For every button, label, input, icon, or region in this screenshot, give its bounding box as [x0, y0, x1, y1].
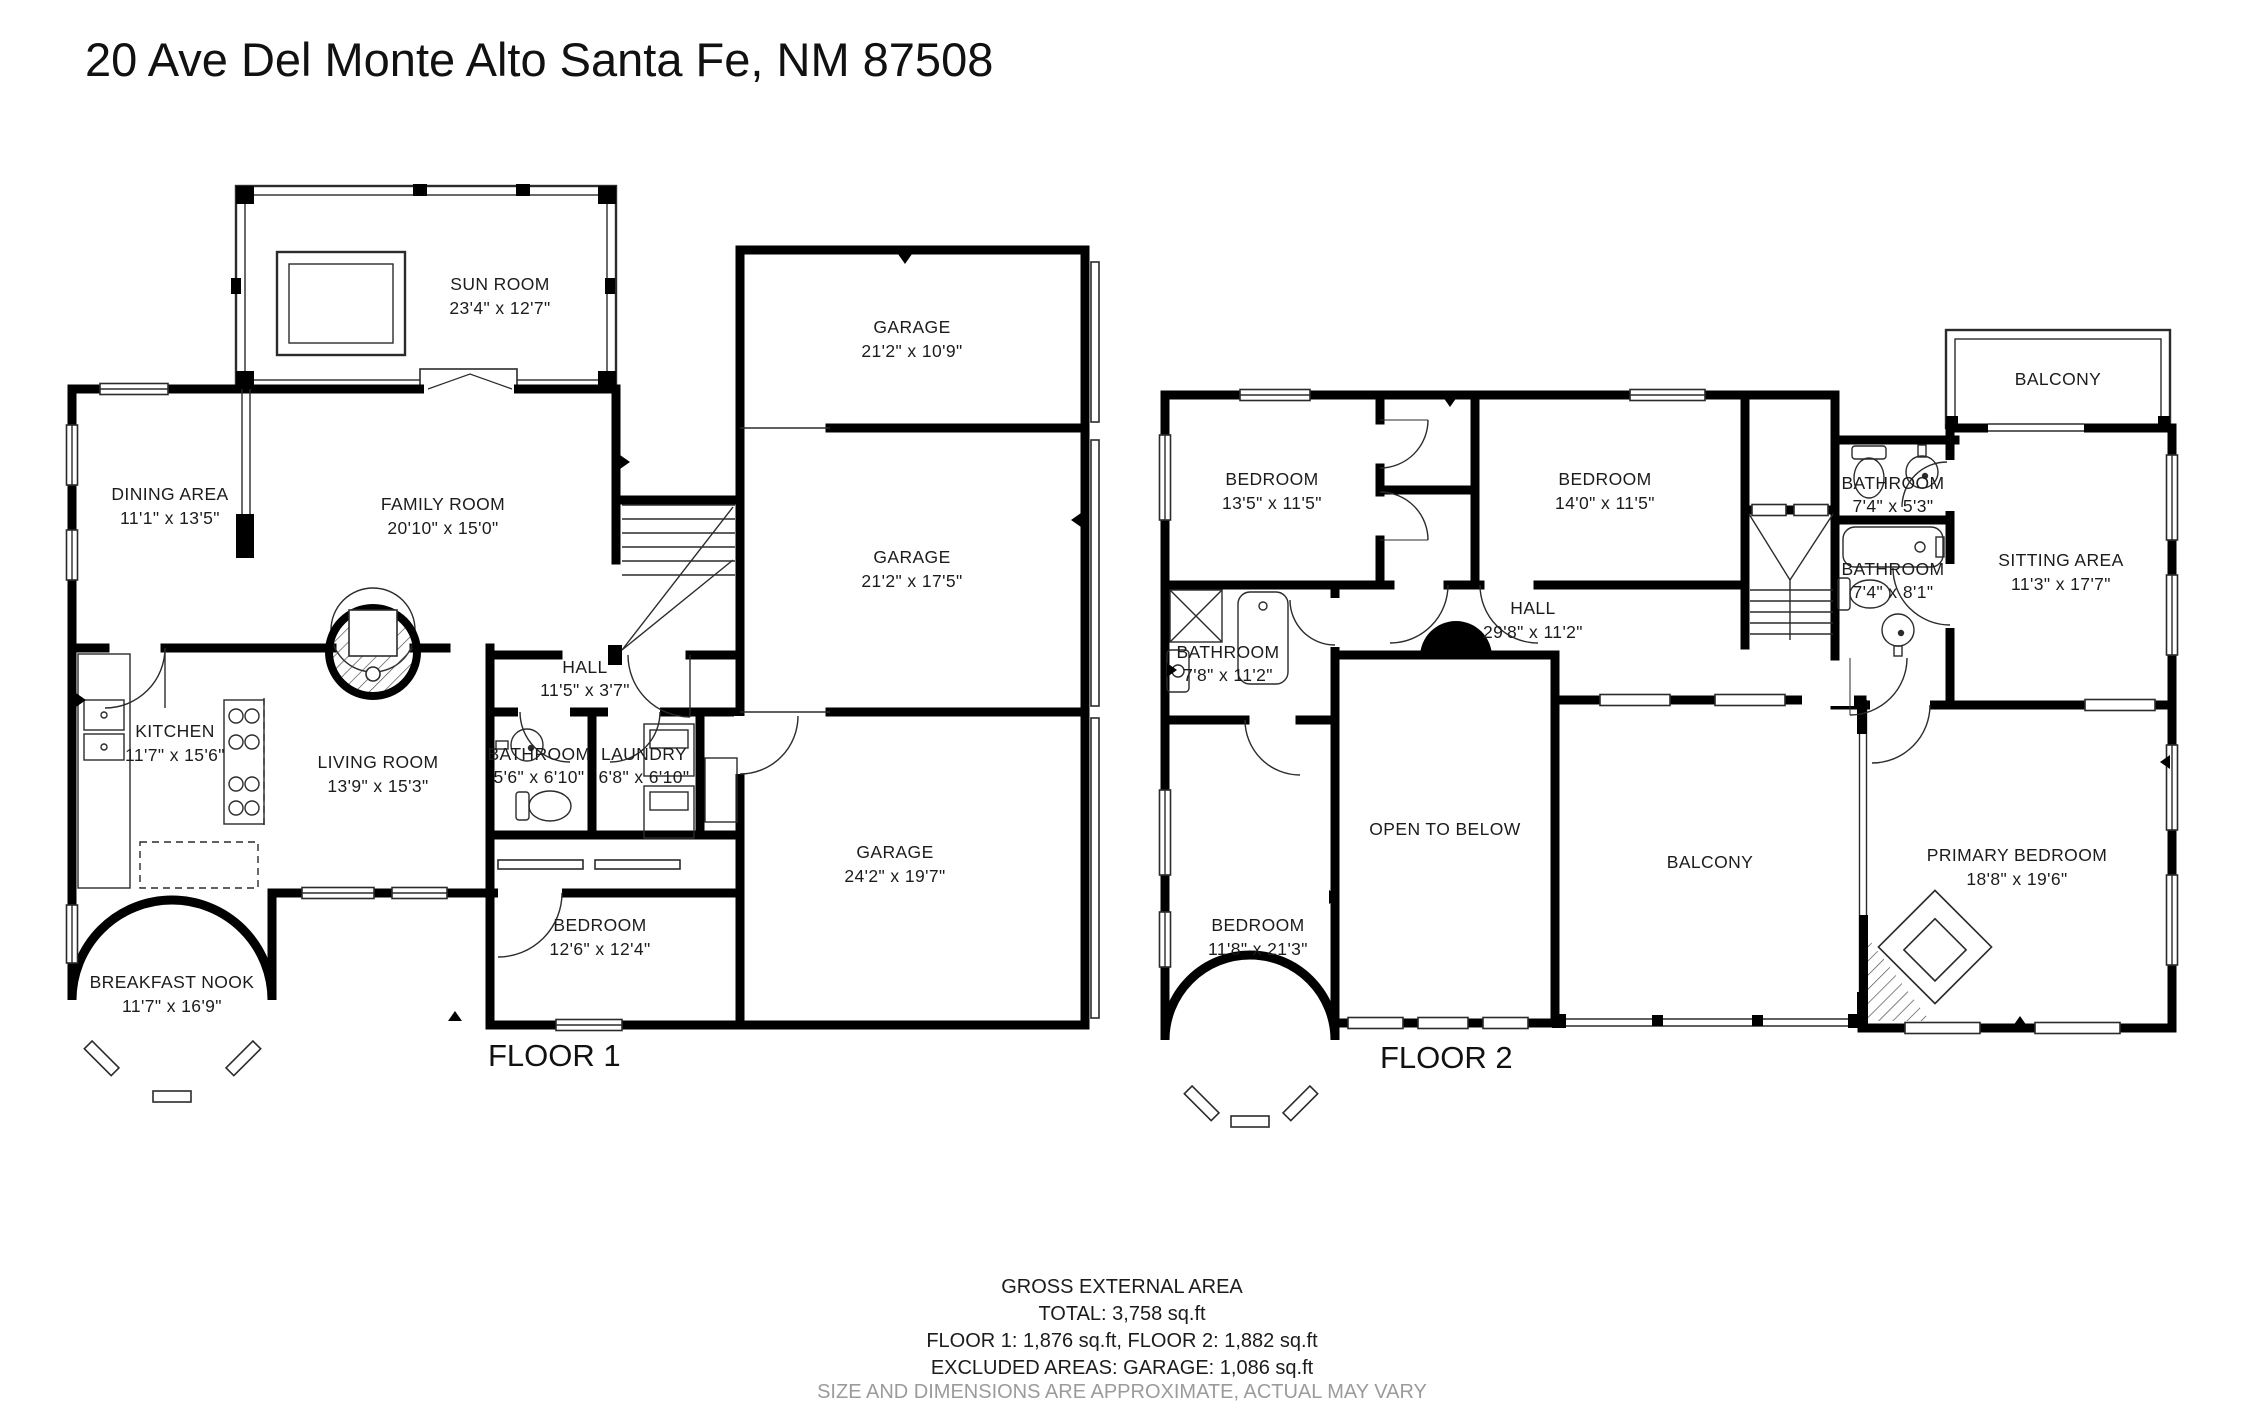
room-label-nook-dims: 11'7" x 16'9" [122, 996, 222, 1016]
room-label-balcony-top: BALCONY [2015, 369, 2101, 389]
room-label-bedroom2l-dims: 13'5" x 11'5" [1222, 493, 1322, 513]
room-label-sitting-dims: 11'3" x 17'7" [2011, 574, 2111, 594]
room-label-living-dims: 13'9" x 15'3" [327, 776, 428, 796]
kiva-fireplace-icon [329, 588, 417, 696]
floor2-walls [1165, 395, 2172, 1040]
room-label-kitchen-name: KITCHEN [135, 721, 215, 741]
room-label-primary-dims: 18'8" x 19'6" [1966, 869, 2067, 889]
footer-total: TOTAL: 3,758 sq.ft [1038, 1303, 1206, 1325]
footer-heading: GROSS EXTERNAL AREA [1001, 1276, 1243, 1298]
room-label-sun-room-dims: 23'4" x 12'7" [449, 298, 550, 318]
room-label-bath-west-dims: 7'8" x 11'2" [1183, 665, 1273, 685]
floor2-label: FLOOR 2 [1380, 1040, 1513, 1075]
floor1-tick-marks [76, 254, 1081, 1021]
room-label-hall1-dims: 11'5" x 3'7" [540, 680, 630, 700]
room-label-garage-mid-dims: 21'2" x 17'5" [861, 571, 962, 591]
room-label-garage-mid-name: GARAGE [873, 547, 950, 567]
primary-fireplace-icon [1859, 890, 1992, 1025]
room-label-bedroom2m-dims: 14'0" x 11'5" [1555, 493, 1655, 513]
room-label-bath1-name: BATHROOM [487, 744, 590, 764]
room-label-bath-mid-dims: 7'4" x 8'1" [1853, 582, 1934, 602]
room-label-bedroom1f-dims: 12'6" x 12'4" [549, 939, 650, 959]
room-label-nook-name: BREAKFAST NOOK [90, 972, 255, 992]
sun-room-structure [231, 184, 616, 391]
stove-icon [224, 700, 264, 824]
room-label-laundry-dims: 6'8" x 6'10" [598, 767, 689, 787]
room-label-bedroom2b-name: BEDROOM [1211, 915, 1304, 935]
room-label-bath-mid-name: BATHROOM [1841, 559, 1944, 579]
room-label-garage-bottom-name: GARAGE [856, 842, 933, 862]
floor2-stairs [1749, 514, 1833, 640]
footer-floors: FLOOR 1: 1,876 sq.ft, FLOOR 2: 1,882 sq.… [926, 1330, 1318, 1352]
room-label-hall2-name: HALL [1510, 598, 1555, 618]
room-label-primary-name: PRIMARY BEDROOM [1927, 845, 2107, 865]
room-label-bath-small-name: BATHROOM [1841, 473, 1944, 493]
floor2-plan: BEDROOM 13'5" x 11'5" BEDROOM 14'0" x 11… [1160, 330, 2178, 1127]
room-label-sitting-name: SITTING AREA [1998, 550, 2123, 570]
floor1-walls [72, 250, 1085, 1025]
room-label-living-name: LIVING ROOM [317, 752, 438, 772]
room-label-family-dims: 20'10" x 15'0" [387, 518, 498, 538]
floor1-label: FLOOR 1 [488, 1038, 621, 1073]
floor1-plan: SUN ROOM 23'4" x 12'7" GARAGE 21'2" x 10… [67, 184, 1100, 1102]
room-label-bath-small-dims: 7'4" x 5'3" [1853, 496, 1934, 516]
footer-disclaimer: SIZE AND DIMENSIONS ARE APPROXIMATE, ACT… [817, 1381, 1427, 1402]
room-label-garage-top-name: GARAGE [873, 317, 950, 337]
floor1-doors [105, 374, 798, 957]
room-label-bedroom2l-name: BEDROOM [1225, 469, 1318, 489]
water-heater [705, 758, 737, 822]
room-label-garage-bottom-dims: 24'2" x 19'7" [844, 866, 945, 886]
garage-door-top [1091, 262, 1099, 422]
room-label-garage-top-dims: 21'2" x 10'9" [861, 341, 962, 361]
room-label-bedroom2m-name: BEDROOM [1558, 469, 1651, 489]
room-label-open-below: OPEN TO BELOW [1369, 819, 1520, 839]
room-label-dining-dims: 11'1" x 13'5" [120, 508, 220, 528]
room-label-bedroom1f-name: BEDROOM [553, 915, 646, 935]
footer-excluded: EXCLUDED AREAS: GARAGE: 1,086 sq.ft [931, 1357, 1314, 1379]
room-label-hall2-dims: 29'8" x 11'2" [1483, 622, 1583, 642]
floor1-stairs [622, 505, 735, 650]
garage-door-mid [1091, 440, 1099, 706]
room-label-dining-name: DINING AREA [111, 484, 228, 504]
room-label-laundry-name: LAUNDRY [601, 744, 687, 764]
floor2-tick-marks [1167, 397, 2170, 1026]
page-title: 20 Ave Del Monte Alto Santa Fe, NM 87508 [85, 33, 993, 86]
room-label-bath1-dims: 5'6" x 6'10" [493, 767, 584, 787]
room-label-bedroom2b-dims: 11'8" x 21'3" [1208, 939, 1308, 959]
room-label-sun-room-name: SUN ROOM [450, 274, 549, 294]
room-label-bath-west-name: BATHROOM [1176, 642, 1279, 662]
sunroom-spa [277, 252, 405, 355]
balcony-mid-railing [1552, 1014, 1862, 1028]
room-label-hall1-name: HALL [562, 657, 607, 677]
garage-door-bottom [1091, 718, 1099, 1018]
kitchen-counter [78, 654, 264, 888]
room-label-balcony-mid: BALCONY [1667, 852, 1753, 872]
room-label-family-name: FAMILY ROOM [381, 494, 505, 514]
room-label-kitchen-dims: 11'7" x 15'6" [125, 745, 225, 765]
footer-area-summary: GROSS EXTERNAL AREA TOTAL: 3,758 sq.ft F… [817, 1276, 1427, 1402]
floor-plan-canvas: 20 Ave Del Monte Alto Santa Fe, NM 87508 [0, 0, 2245, 1402]
